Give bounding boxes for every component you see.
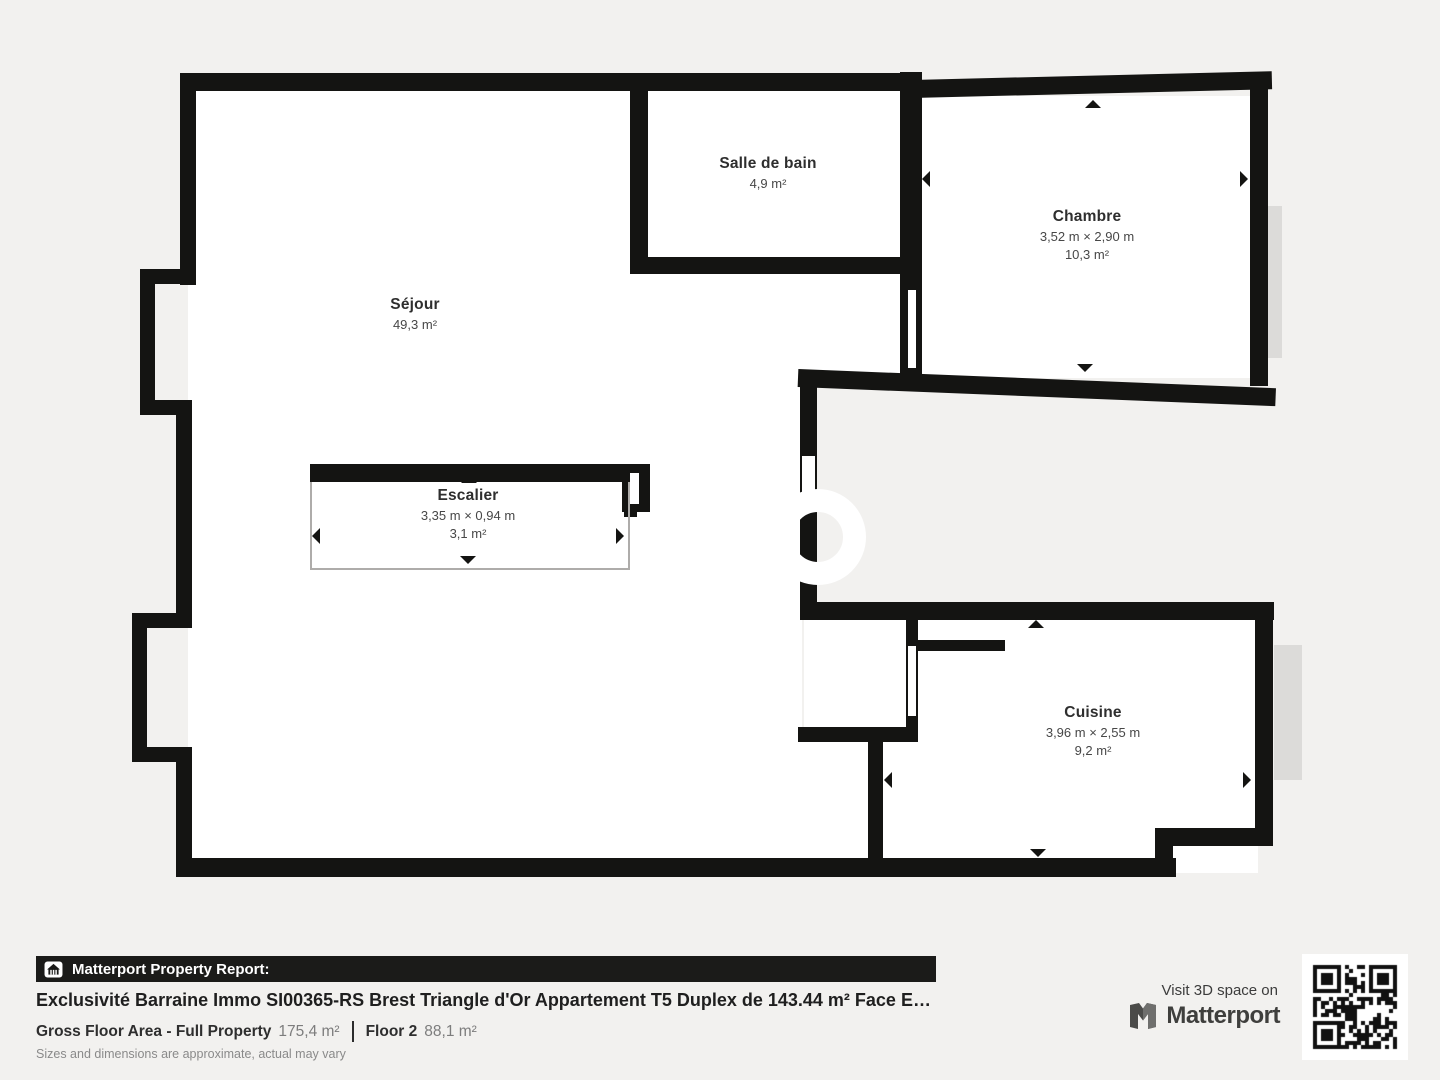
room-fill-passage (800, 742, 870, 860)
floor-plan-page: Séjour 49,3 m² Salle de bain 4,9 m² Cham… (0, 0, 1440, 1080)
balcony-shadow-cuisine (1274, 645, 1302, 780)
matterport-watermark-icon (770, 489, 866, 585)
dimension-arrow (884, 772, 892, 788)
wall-segment (630, 257, 917, 274)
balcony-shadow-chambre (1268, 206, 1282, 358)
dimension-arrow (1243, 772, 1251, 788)
matterport-wordmark: Matterport (1166, 1002, 1280, 1030)
wall-segment (310, 464, 650, 482)
dimension-arrow (460, 556, 476, 564)
wall-segment (917, 640, 1005, 651)
wall-segment (140, 269, 155, 415)
room-label-salle-de-bain: Salle de bain 4,9 m² (719, 155, 816, 191)
matterport-brand: Matterport (1128, 1002, 1280, 1030)
area-summary: Gross Floor Area - Full Property 175,4 m… (36, 1021, 477, 1042)
room-area: 9,2 m² (1046, 743, 1140, 758)
dimension-arrow (922, 171, 930, 187)
floor-area-value: 88,1 m² (424, 1023, 477, 1041)
visit-3d-label: Visit 3D space on (1162, 982, 1278, 999)
room-dimensions: 3,35 m × 0,94 m (421, 508, 515, 523)
report-header-bar: Matterport Property Report: (36, 956, 936, 982)
room-label-chambre: Chambre 3,52 m × 2,90 m 10,3 m² (1040, 208, 1134, 262)
room-area: 49,3 m² (390, 317, 439, 332)
dimension-arrow (1240, 171, 1248, 187)
room-fill-sejour-lower (188, 376, 802, 866)
dimension-arrow (1085, 100, 1101, 108)
building-icon (44, 961, 63, 978)
room-area: 4,9 m² (719, 176, 816, 191)
room-name: Salle de bain (719, 155, 816, 173)
wall-segment (630, 73, 648, 273)
floor-label: Floor 2 (366, 1023, 418, 1041)
wall-segment (180, 73, 196, 285)
wall-segment (176, 400, 192, 628)
wall-segment (1250, 84, 1268, 386)
door-opening (908, 646, 916, 716)
room-name: Escalier (421, 487, 515, 505)
room-dimensions: 3,52 m × 2,90 m (1040, 229, 1134, 244)
dimension-arrow (616, 528, 624, 544)
room-name: Cuisine (1046, 704, 1140, 722)
wall-segment (180, 73, 916, 91)
report-bar-label: Matterport Property Report: (72, 961, 270, 978)
room-area: 10,3 m² (1040, 247, 1134, 262)
wall-segment (176, 858, 1176, 877)
room-label-escalier: Escalier 3,35 m × 0,94 m 3,1 m² (421, 487, 515, 541)
room-label-sejour: Séjour 49,3 m² (390, 296, 439, 332)
gross-floor-area-value: 175,4 m² (278, 1023, 339, 1041)
room-dimensions: 3,96 m × 2,55 m (1046, 725, 1140, 740)
wall-segment (868, 742, 883, 864)
wall-segment (800, 602, 1274, 620)
room-name: Chambre (1040, 208, 1134, 226)
disclaimer-text: Sizes and dimensions are approximate, ac… (36, 1047, 346, 1061)
room-label-cuisine: Cuisine 3,96 m × 2,55 m 9,2 m² (1046, 704, 1140, 758)
room-area: 3,1 m² (421, 526, 515, 541)
qr-code (1302, 954, 1408, 1060)
room-fill-sejour-upper (188, 84, 910, 376)
door-opening (630, 473, 639, 504)
door-opening (908, 290, 916, 368)
wall-segment (798, 727, 918, 742)
matterport-logo-icon (1128, 1002, 1158, 1030)
dimension-arrow (1030, 849, 1046, 857)
dimension-arrow (461, 475, 477, 483)
room-name: Séjour (390, 296, 439, 314)
wall-segment (132, 613, 147, 762)
dimension-arrow (1077, 364, 1093, 372)
dimension-arrow (1028, 620, 1044, 628)
wall-segment (1255, 602, 1273, 846)
door-opening (802, 456, 815, 492)
divider (352, 1021, 354, 1042)
wall-segment (912, 71, 1272, 98)
property-title: Exclusivité Barraine Immo SI00365-RS Bre… (36, 990, 956, 1011)
gross-floor-area-label: Gross Floor Area - Full Property (36, 1023, 271, 1041)
dimension-arrow (312, 528, 320, 544)
